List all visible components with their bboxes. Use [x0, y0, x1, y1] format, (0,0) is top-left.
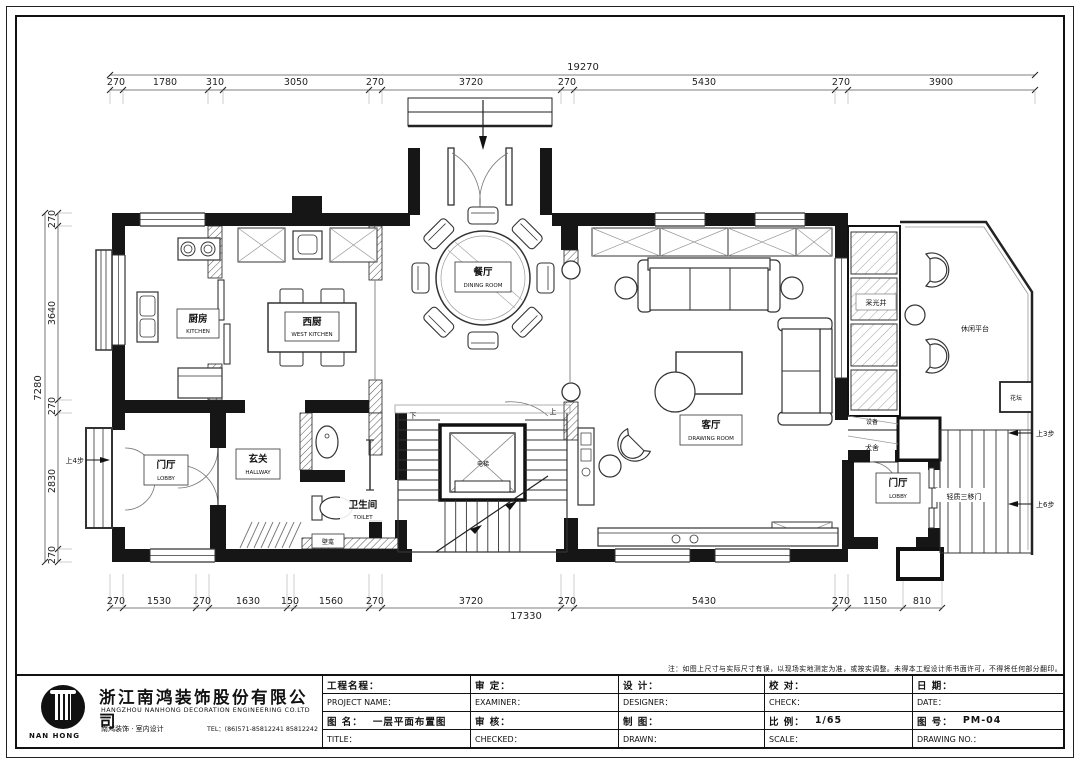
svg-text:卫生间: 卫生间: [349, 499, 378, 511]
dim-value: 270: [558, 77, 576, 88]
dim-value: 3720: [459, 596, 483, 607]
hallway-floor-grille: [240, 522, 301, 548]
west-kitchen-sink: [293, 231, 322, 259]
label-lobby-right: 门厅 LOBBY: [876, 473, 920, 503]
tb-col-check: 校 对： CHECK： 比 例：1/65 SCALE：: [764, 676, 913, 748]
dim-value: 270: [107, 77, 125, 88]
company-logo-icon: [41, 685, 85, 729]
label-up3: 上3步: [1036, 429, 1054, 438]
dim-value: 5430: [692, 77, 716, 88]
field-scale-zh: 比 例：: [769, 714, 805, 728]
svg-text:客厅: 客厅: [700, 419, 721, 431]
field-designer-zh: 设 计：: [623, 678, 659, 692]
tb-col-project: 工程名程： PROJECT NAME： 图 名：一层平面布置图 TITLE：: [322, 676, 471, 748]
company-block: NAN HONG 浙江南鸿装饰股份有限公司 HANGZHOU NANHONG D…: [17, 676, 322, 748]
svg-text:西厨: 西厨: [302, 317, 322, 328]
field-examiner-en: EXAMINER：: [475, 697, 525, 708]
entry-porch: [408, 98, 552, 215]
dimension-chain-left: 270 3640 270 2830 270 7280: [33, 210, 58, 564]
tb-col-examiner: 审 定： EXAMINER： 审 核： CHECKED：: [470, 676, 619, 748]
dim-value: 1780: [153, 77, 177, 88]
svg-text:门厅: 门厅: [156, 459, 176, 471]
dim-value: 3720: [459, 77, 483, 88]
svg-text:KITCHEN: KITCHEN: [186, 329, 210, 335]
field-check-en: CHECK：: [769, 697, 805, 708]
dim-value: 2830: [47, 469, 58, 493]
label-living: 客厅 DRAWING ROOM: [680, 415, 742, 445]
svg-text:轻质三移门: 轻质三移门: [947, 492, 982, 501]
label-up4: 上4步: [66, 456, 84, 465]
label-hallway: 玄关 HALLWAY: [236, 449, 280, 479]
field-designer-en: DESIGNER：: [623, 697, 672, 708]
dim-value: 1630: [236, 596, 260, 607]
duct-box: [292, 196, 322, 214]
svg-text:LOBBY: LOBBY: [889, 494, 907, 500]
svg-text:厨房: 厨房: [188, 313, 207, 325]
label-stairs-down: 下: [410, 412, 417, 420]
dim-value: 310: [206, 77, 224, 88]
dim-total-left: 7280: [33, 375, 44, 400]
field-no-zh: 图 号：: [917, 714, 953, 728]
scale-value: 1/65: [815, 715, 842, 726]
field-drawn-en: DRAWN：: [623, 734, 661, 745]
field-project-en: PROJECT NAME：: [327, 697, 396, 708]
dim-value: 270: [366, 596, 384, 607]
dim-value: 3640: [47, 301, 58, 325]
svg-text:玄关: 玄关: [248, 453, 268, 465]
svg-text:DINING ROOM: DINING ROOM: [464, 283, 503, 289]
label-leisure-platform: 休闲平台: [961, 324, 989, 333]
label-lobby-left: 门厅 LOBBY: [144, 455, 188, 485]
dim-total-top: 19270: [567, 62, 599, 73]
svg-text:餐厅: 餐厅: [472, 266, 493, 278]
label-light-well: 采光井: [856, 294, 896, 310]
label-equipment: 设备: [866, 418, 878, 426]
dimension-chain-bottom: 270 1530 270 1630 150 1560 270 3720 270 …: [107, 596, 931, 622]
light-well: [848, 226, 900, 416]
label-elevator: 电梯: [477, 460, 489, 468]
label-flower-bed: 花坛: [1010, 394, 1022, 402]
dim-value: 150: [281, 596, 299, 607]
dim-value: 270: [193, 596, 211, 607]
drawing-sheet: 270 1780 310 3050 270 3720 270 5430 270 …: [0, 0, 1080, 764]
company-tel: TEL：(86)571-85812241 85812242: [207, 724, 318, 733]
logo-caption: NAN HONG: [29, 732, 99, 740]
field-date-en: DATE：: [917, 697, 946, 708]
dim-value: 270: [47, 397, 58, 415]
dim-total-bottom: 17330: [510, 611, 542, 622]
dim-value: 810: [913, 596, 931, 607]
company-brand: 南鸿装饰 · 室内设计: [101, 724, 164, 734]
label-west-kitchen: 西厨 WEST KITCHEN: [285, 312, 339, 341]
svg-text:壁龛: 壁龛: [322, 538, 334, 546]
svg-text:LOBBY: LOBBY: [157, 476, 175, 482]
dim-value: 5430: [692, 596, 716, 607]
label-dining: 餐厅 DINING ROOM: [455, 262, 511, 292]
dim-value: 270: [366, 77, 384, 88]
field-title-en: TITLE：: [327, 734, 357, 745]
field-no-en: DRAWING NO.：: [917, 734, 981, 745]
svg-text:采光井: 采光井: [866, 298, 887, 307]
drawing-note: 注：如图上尺寸与实际尺寸有误，以现场实地测定为准，或按实调整。未得本工程设计师书…: [668, 663, 1062, 673]
field-scale-en: SCALE：: [769, 734, 803, 745]
field-checked-zh: 审 核：: [475, 714, 511, 728]
label-kitchen: 厨房 KITCHEN: [177, 309, 219, 338]
label-stairs-up: 上: [550, 407, 557, 416]
field-project-zh: 工程名程：: [327, 678, 380, 692]
dim-value: 3900: [929, 77, 953, 88]
living-room-furniture: [598, 258, 838, 546]
field-checked-en: CHECKED：: [475, 734, 522, 745]
dim-value: 3050: [284, 77, 308, 88]
dim-value: 270: [47, 210, 58, 228]
dim-value: 270: [832, 596, 850, 607]
field-drawn-zh: 制 图：: [623, 714, 659, 728]
dim-value: 1530: [147, 596, 171, 607]
label-dog-house: 犬舍: [865, 443, 879, 452]
label-niche: 壁龛: [312, 534, 344, 548]
field-date-zh: 日 期：: [917, 678, 953, 692]
dim-value: 270: [47, 546, 58, 564]
drawing-name-value: 一层平面布置图: [373, 714, 447, 728]
drawing-no-value: PM-04: [963, 715, 1002, 726]
dim-value: 1150: [863, 596, 887, 607]
title-block: NAN HONG 浙江南鸿装饰股份有限公司 HANGZHOU NANHONG D…: [17, 674, 1063, 748]
field-examiner-zh: 审 定：: [475, 678, 511, 692]
svg-text:TOILET: TOILET: [352, 515, 373, 521]
dim-value: 270: [107, 596, 125, 607]
dim-value: 1560: [319, 596, 343, 607]
label-toilet: 卫生间 TOILET: [340, 496, 386, 522]
dim-value: 270: [832, 77, 850, 88]
svg-text:门厅: 门厅: [888, 477, 908, 489]
svg-text:HALLWAY: HALLWAY: [245, 470, 271, 476]
svg-text:WEST KITCHEN: WEST KITCHEN: [291, 332, 332, 338]
label-sliding-door: 轻质三移门: [936, 488, 992, 502]
label-up6: 上6步: [1036, 500, 1054, 509]
floor-plan-canvas: 270 1780 310 3050 270 3720 270 5430 270 …: [0, 0, 1080, 650]
bay-window-left: [96, 250, 112, 350]
field-check-zh: 校 对：: [769, 678, 805, 692]
svg-text:DRAWING ROOM: DRAWING ROOM: [688, 436, 734, 442]
tb-col-date: 日 期： DATE： 图 号：PM-04 DRAWING NO.：: [912, 676, 1063, 748]
field-drawing-name-zh: 图 名：: [327, 714, 363, 728]
dim-value: 270: [558, 596, 576, 607]
company-name-en: HANGZHOU NANHONG DECORATION ENGINEERING …: [101, 707, 310, 714]
tb-col-designer: 设 计： DESIGNER： 制 图： DRAWN：: [618, 676, 765, 748]
